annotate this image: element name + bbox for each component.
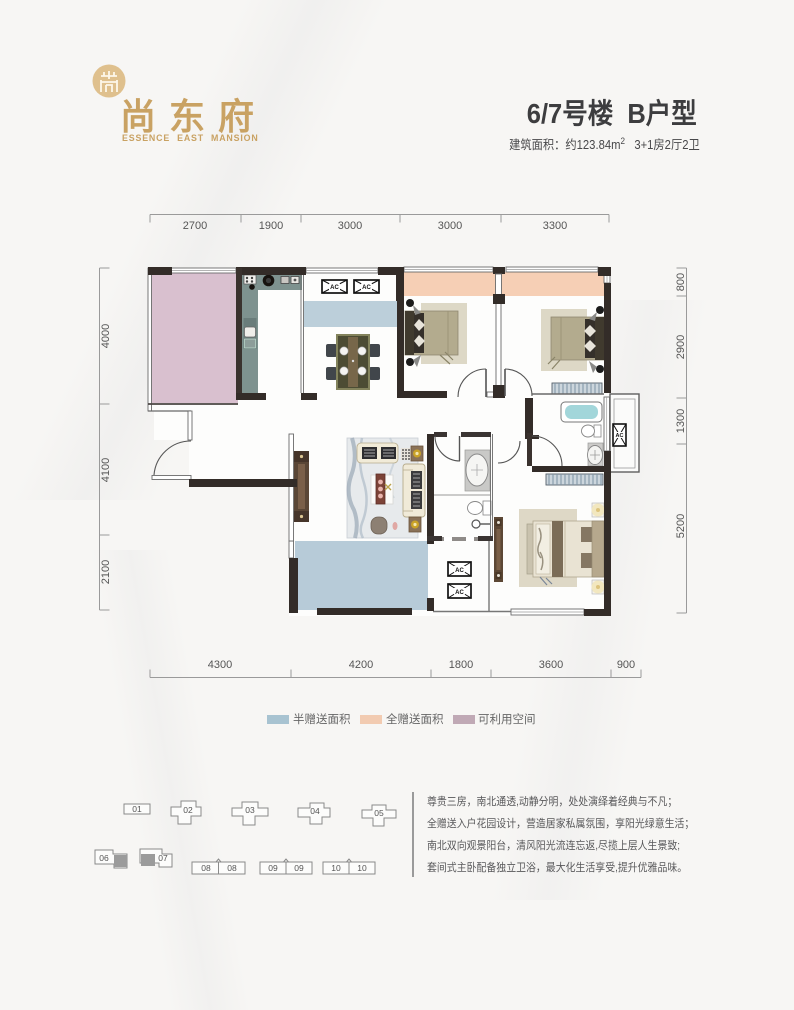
svg-text:AC: AC bbox=[455, 568, 464, 574]
svg-text:10: 10 bbox=[357, 863, 367, 873]
svg-text:3600: 3600 bbox=[539, 659, 563, 671]
svg-text:10: 10 bbox=[331, 863, 341, 873]
svg-text:1900: 1900 bbox=[259, 220, 283, 232]
svg-text:4300: 4300 bbox=[208, 659, 232, 671]
svg-text:AC: AC bbox=[455, 590, 464, 596]
svg-text:2900: 2900 bbox=[675, 335, 687, 359]
svg-text:2100: 2100 bbox=[100, 560, 112, 584]
svg-text:03: 03 bbox=[245, 805, 255, 815]
svg-text:1300: 1300 bbox=[675, 409, 687, 433]
svg-text:AC: AC bbox=[330, 285, 339, 291]
svg-text:可利用空间: 可利用空间 bbox=[478, 712, 536, 726]
svg-text:08: 08 bbox=[201, 863, 211, 873]
svg-text:AC: AC bbox=[616, 433, 624, 439]
svg-text:全赠送面积: 全赠送面积 bbox=[386, 712, 444, 726]
svg-text:07: 07 bbox=[158, 853, 168, 863]
svg-text:半赠送面积: 半赠送面积 bbox=[293, 712, 351, 726]
svg-text:04: 04 bbox=[310, 806, 320, 816]
svg-text:05: 05 bbox=[374, 808, 384, 818]
svg-text:09: 09 bbox=[268, 863, 278, 873]
svg-text:900: 900 bbox=[617, 659, 635, 671]
svg-text:06: 06 bbox=[99, 853, 109, 863]
svg-text:1800: 1800 bbox=[449, 659, 473, 671]
svg-text:800: 800 bbox=[675, 273, 687, 291]
svg-text:08: 08 bbox=[227, 863, 237, 873]
svg-text:AC: AC bbox=[362, 285, 371, 291]
svg-text:01: 01 bbox=[132, 804, 142, 814]
svg-text:4200: 4200 bbox=[349, 659, 373, 671]
svg-text:2700: 2700 bbox=[183, 220, 207, 232]
svg-text:4000: 4000 bbox=[100, 324, 112, 348]
svg-text:3300: 3300 bbox=[543, 220, 567, 232]
svg-text:4100: 4100 bbox=[100, 458, 112, 482]
svg-text:02: 02 bbox=[183, 805, 193, 815]
svg-text:5200: 5200 bbox=[675, 514, 687, 538]
svg-text:3000: 3000 bbox=[438, 220, 462, 232]
svg-text:3000: 3000 bbox=[338, 220, 362, 232]
svg-text:09: 09 bbox=[294, 863, 304, 873]
